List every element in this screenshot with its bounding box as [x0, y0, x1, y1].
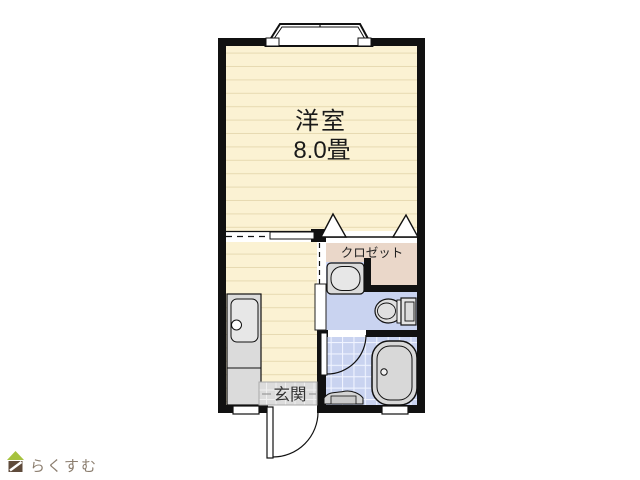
- bay-window: [266, 24, 372, 46]
- kitchen-sink: [227, 294, 261, 405]
- washbasin: [327, 263, 364, 294]
- main-room-name-label: 洋室: [295, 108, 347, 135]
- closet-area-deep: [371, 262, 417, 285]
- logo: らくすむ: [7, 451, 98, 475]
- closet-label: クロゼット: [341, 246, 404, 260]
- main-room-size-label: 8.0畳: [293, 137, 350, 164]
- shower-counter: [324, 391, 363, 404]
- logo-roof-icon: [7, 451, 24, 460]
- bathtub: [372, 341, 417, 405]
- logo-text: らくすむ: [30, 458, 98, 475]
- toilet-room-door: [315, 284, 326, 330]
- entrance-door: [267, 407, 318, 458]
- entrance-label: 玄関: [274, 385, 307, 404]
- sliding-partition: [226, 232, 314, 240]
- floorplan: 洋室 8.0畳 クロゼット 玄関 らくすむ: [0, 0, 640, 480]
- toilet: [375, 298, 416, 325]
